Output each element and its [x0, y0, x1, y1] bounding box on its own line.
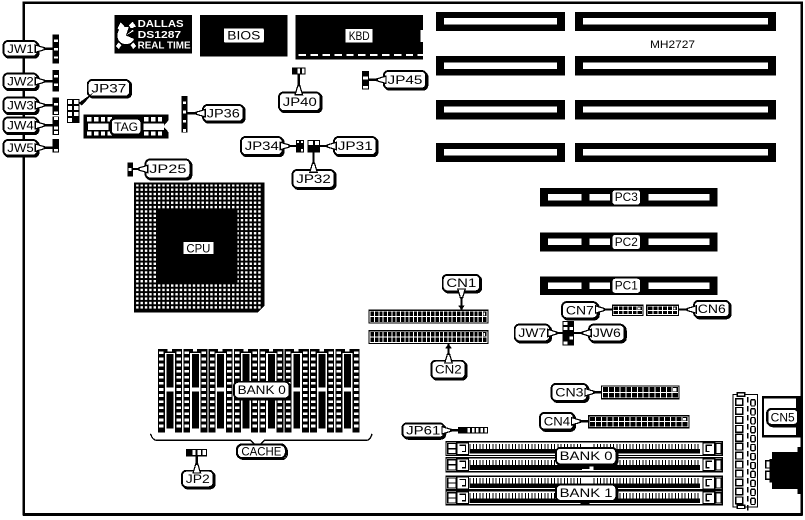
svg-text:CACHE: CACHE	[241, 446, 281, 459]
svg-text:JP25: JP25	[149, 162, 187, 176]
svg-text:CPU: CPU	[186, 241, 210, 255]
svg-text:BANK 1: BANK 1	[560, 486, 613, 500]
svg-text:CN2: CN2	[435, 363, 462, 377]
svg-text:JP40: JP40	[283, 95, 318, 109]
svg-text:JW4: JW4	[7, 118, 34, 132]
svg-text:BANK 0: BANK 0	[560, 449, 613, 463]
svg-text:JW7: JW7	[518, 326, 546, 340]
svg-text:CN5: CN5	[771, 410, 795, 424]
svg-text:JW1: JW1	[7, 42, 34, 56]
svg-text:CN6: CN6	[698, 302, 727, 316]
svg-text:JW6: JW6	[593, 326, 622, 340]
svg-text:JP32: JP32	[296, 172, 331, 186]
svg-text:DS1287: DS1287	[138, 30, 182, 41]
svg-text:TAG: TAG	[114, 120, 138, 134]
svg-text:BIOS: BIOS	[227, 29, 260, 43]
svg-text:JP31: JP31	[338, 139, 373, 153]
svg-text:JW2: JW2	[7, 74, 34, 88]
svg-text:JP34: JP34	[245, 139, 280, 153]
svg-text:JP45: JP45	[388, 73, 423, 87]
svg-text:JP2: JP2	[186, 472, 210, 486]
svg-text:CN1: CN1	[446, 276, 476, 290]
svg-text:CN7: CN7	[566, 303, 594, 317]
svg-text:JP61: JP61	[406, 425, 440, 438]
svg-text:PC2: PC2	[615, 235, 638, 249]
svg-text:CN3: CN3	[555, 385, 584, 399]
svg-text:KBD: KBD	[349, 29, 370, 43]
svg-text:JW5: JW5	[7, 141, 34, 155]
svg-text:JW3: JW3	[7, 98, 34, 112]
svg-text:MH2727: MH2727	[650, 39, 695, 51]
svg-text:JP37: JP37	[91, 81, 126, 95]
svg-text:JP36: JP36	[207, 106, 241, 120]
svg-text:BANK 0: BANK 0	[238, 383, 286, 397]
svg-text:PC1: PC1	[615, 279, 638, 293]
svg-text:CN4: CN4	[544, 414, 571, 428]
svg-text:REAL TIME: REAL TIME	[138, 41, 191, 52]
svg-text:PC3: PC3	[615, 190, 638, 204]
svg-text:DALLAS: DALLAS	[138, 19, 184, 30]
